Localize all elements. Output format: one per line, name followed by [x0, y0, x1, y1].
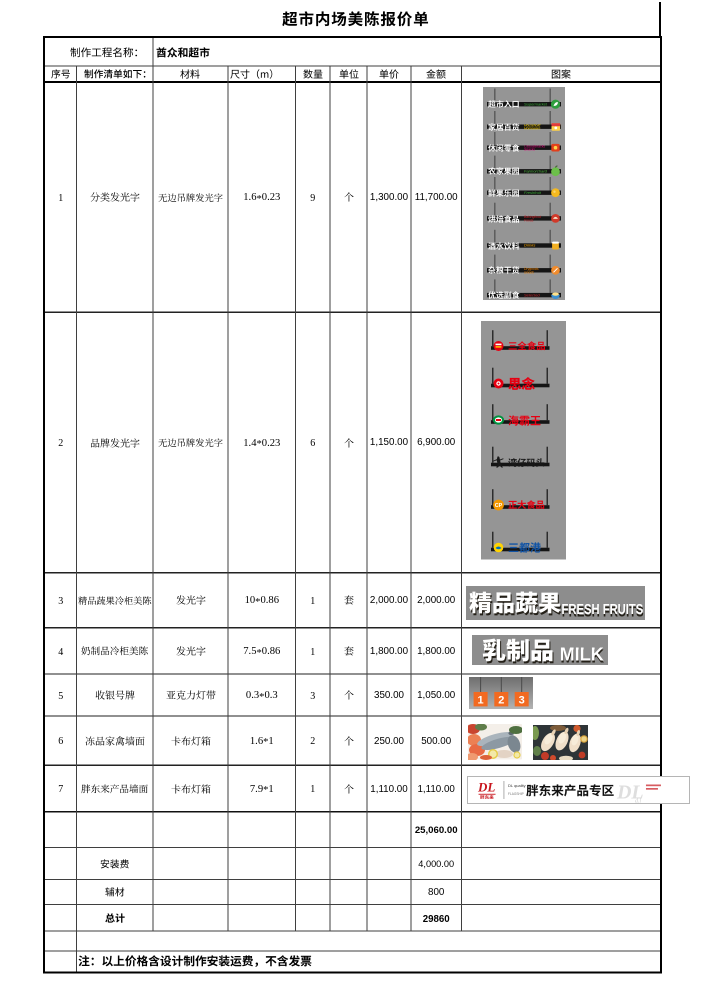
svg-text:d.l: d.l [635, 798, 641, 804]
svg-text:Foods: Foods [524, 218, 534, 222]
svg-text:Snacks: Snacks [524, 148, 535, 152]
svg-text:MILK: MILK [560, 644, 604, 664]
svg-text:FRESH FRUITS: FRESH FRUITS [562, 601, 644, 618]
svg-text:Freshfruit: Freshfruit [524, 190, 542, 195]
svg-text:FLAGSHIP: FLAGSHIP [508, 792, 524, 796]
svg-text:Goods: Goods [524, 270, 534, 274]
svg-text:Drinks: Drinks [524, 243, 535, 248]
svg-text:Supermarket: Supermarket [524, 101, 548, 106]
svg-text:1: 1 [478, 695, 484, 707]
svg-text:DL quality: DL quality [508, 783, 526, 788]
svg-text:Selected: Selected [524, 292, 540, 297]
svg-text:2: 2 [498, 695, 504, 707]
svg-text:DL: DL [477, 779, 495, 794]
svg-text:Homeware: Homeware [524, 127, 541, 131]
svg-text:CP: CP [495, 503, 503, 509]
svg-text:3: 3 [519, 695, 525, 707]
svg-text:Farmorchard: Farmorchard [524, 169, 548, 174]
